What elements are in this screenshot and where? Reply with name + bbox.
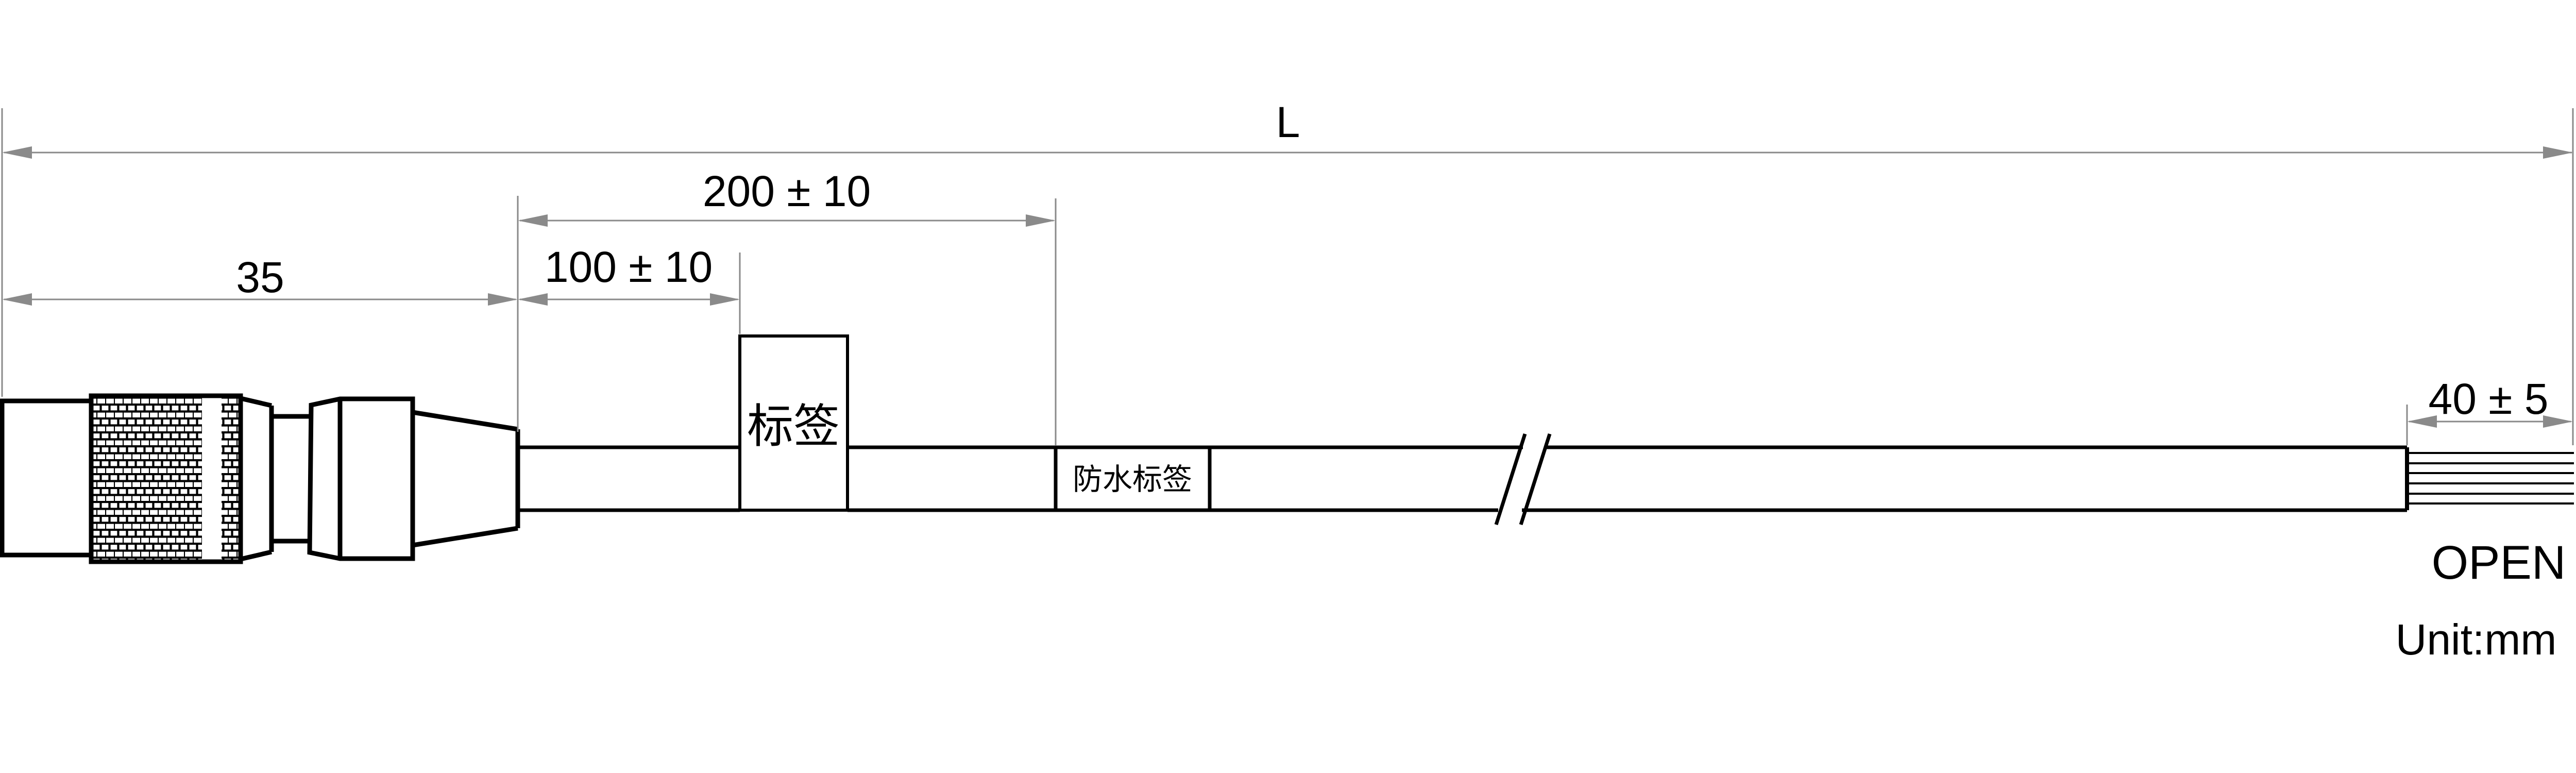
- arrow-right-icon: [2543, 146, 2573, 159]
- cable-labels: 标签 防水标签: [740, 336, 1210, 510]
- dimension-text-first-label: 100 ± 10: [545, 243, 713, 291]
- arrow-left-icon: [518, 293, 548, 306]
- knurl-texture-main: [93, 397, 202, 560]
- cable-outline-drawing: 标签 防水标签 L 35 100 ± 10 200 ± 10: [0, 0, 2576, 773]
- dimension-connector-length: 35: [2, 253, 518, 306]
- dimension-text-waterproof-label: 200 ± 10: [703, 167, 871, 215]
- wire-strands: [2408, 453, 2574, 503]
- connector-backshell: [310, 399, 413, 559]
- dimension-first-label-offset: 100 ± 10: [518, 243, 740, 306]
- arrow-left-icon: [2, 293, 32, 306]
- dimension-text-overall: L: [1276, 98, 1300, 146]
- arrow-right-icon: [1026, 214, 1056, 227]
- extension-lines: [2, 108, 2573, 445]
- unit-note: Unit:mm: [2396, 615, 2557, 664]
- tag-label-text: 标签: [747, 401, 840, 452]
- cable-drawing-canvas: 标签 防水标签 L 35 100 ± 10 200 ± 10: [0, 0, 2576, 773]
- knurl-texture-ring: [222, 397, 240, 560]
- dimension-open-strip-length: 40 ± 5: [2407, 375, 2573, 428]
- annotations: OPEN Unit:mm: [2396, 536, 2566, 664]
- connector-flange-taper: [241, 398, 272, 559]
- dimension-text-strip: 40 ± 5: [2429, 375, 2549, 423]
- dimension-waterproof-label-offset: 200 ± 10: [518, 167, 1056, 227]
- connector-strain-relief-boot: [413, 412, 518, 545]
- waterproof-label-text: 防水标签: [1073, 463, 1192, 496]
- arrow-right-icon: [710, 293, 740, 306]
- open-end-label: OPEN: [2432, 536, 2566, 589]
- dimension-overall-length: L: [2, 98, 2573, 159]
- dimension-text-connector: 35: [236, 253, 284, 301]
- connector: [2, 396, 518, 562]
- connector-neck: [272, 416, 311, 541]
- arrow-left-icon: [518, 214, 548, 227]
- arrow-right-icon: [488, 293, 518, 306]
- arrow-left-icon: [2, 146, 32, 159]
- connector-back-nut: [2, 401, 91, 555]
